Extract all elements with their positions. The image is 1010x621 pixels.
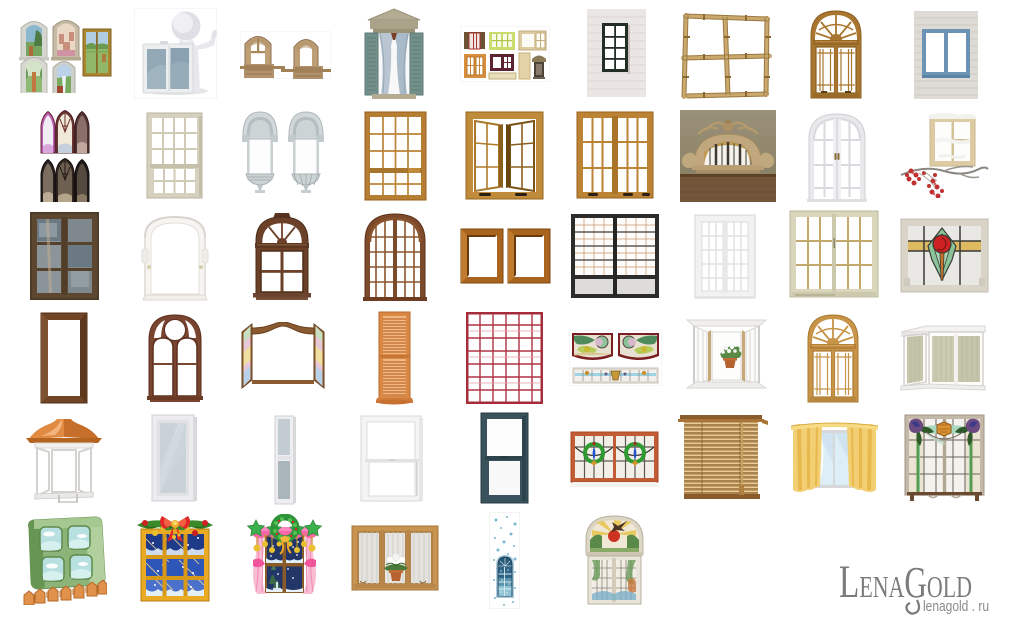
svg-text:lenagold . ru: lenagold . ru — [923, 599, 989, 615]
